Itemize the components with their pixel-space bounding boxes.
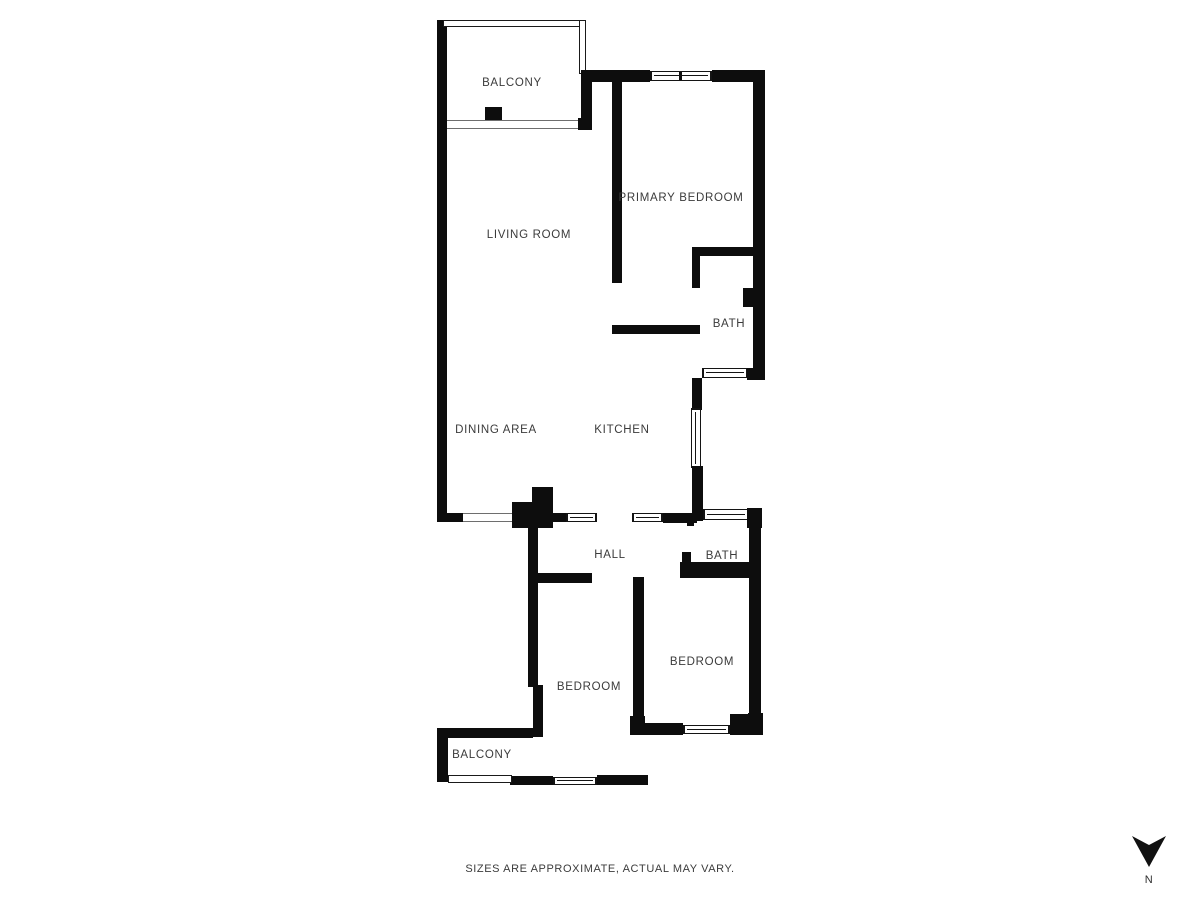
room-label-balcony-top: BALCONY <box>482 77 542 89</box>
wall-bedroom-left-jog <box>533 685 543 737</box>
wall-bath-divider-stub <box>687 518 694 526</box>
wall-corner-block <box>747 368 765 380</box>
wall-bedroom-bottom <box>645 723 683 735</box>
sliding-door-balcony <box>447 120 578 129</box>
wall-bedroom-bottom <box>510 776 553 785</box>
room-label-bedroom-left: BEDROOM <box>557 681 621 693</box>
wall-corner-block <box>730 714 761 735</box>
wall-bedroom-bottom <box>597 775 648 785</box>
wall-exterior-left <box>437 120 447 522</box>
wall-segment <box>553 513 567 522</box>
room-label-primary-bedroom: PRIMARY BEDROOM <box>618 192 743 204</box>
window <box>566 513 597 522</box>
window <box>691 408 701 468</box>
wall-bottom-balcony-top <box>437 728 533 738</box>
wall-exterior-right <box>749 508 761 730</box>
window-mullion <box>679 72 682 80</box>
room-label-living-room: LIVING ROOM <box>487 229 571 241</box>
room-label-hall: HALL <box>594 549 626 561</box>
window <box>650 71 712 81</box>
window <box>702 368 748 378</box>
wall-primary-bedroom-left <box>612 70 622 283</box>
room-label-bath-top: BATH <box>713 318 746 330</box>
balcony-railing <box>443 20 585 27</box>
wall-vestibule-bottom <box>612 325 700 334</box>
wall-kitchen-right <box>692 378 702 410</box>
balcony-railing <box>448 775 512 783</box>
window <box>683 725 730 734</box>
wall-exterior-right <box>753 70 765 380</box>
north-arrow-icon <box>1128 836 1170 868</box>
balcony-railing <box>579 20 586 74</box>
room-label-dining-area: DINING AREA <box>455 424 537 436</box>
room-label-bath-bottom: BATH <box>706 550 739 562</box>
wall-corner-block <box>630 716 645 735</box>
window <box>703 509 749 520</box>
wall-primary-bedroom-bottom <box>692 247 765 256</box>
wall-bedroom-divider <box>633 577 644 723</box>
wall-dining-bottom <box>437 513 463 522</box>
wall-bottom-balcony-left <box>437 728 448 782</box>
compass: N <box>1128 836 1170 886</box>
wall-top-balcony-left <box>437 20 447 128</box>
window <box>632 513 663 522</box>
north-label: N <box>1128 874 1170 886</box>
wall-pillar <box>743 288 757 307</box>
room-label-bedroom-right: BEDROOM <box>670 656 734 668</box>
room-label-kitchen: KITCHEN <box>594 424 649 436</box>
room-label-balcony-bottom: BALCONY <box>452 749 512 761</box>
wall-bath-left <box>692 247 700 288</box>
floor-plan: BALCONY PRIMARY BEDROOM LIVING ROOM BATH… <box>0 0 1200 900</box>
window-dining <box>463 513 512 522</box>
window <box>553 777 597 785</box>
wall-bedroom-left <box>528 521 538 687</box>
disclaimer-text: SIZES ARE APPROXIMATE, ACTUAL MAY VARY. <box>465 863 734 875</box>
